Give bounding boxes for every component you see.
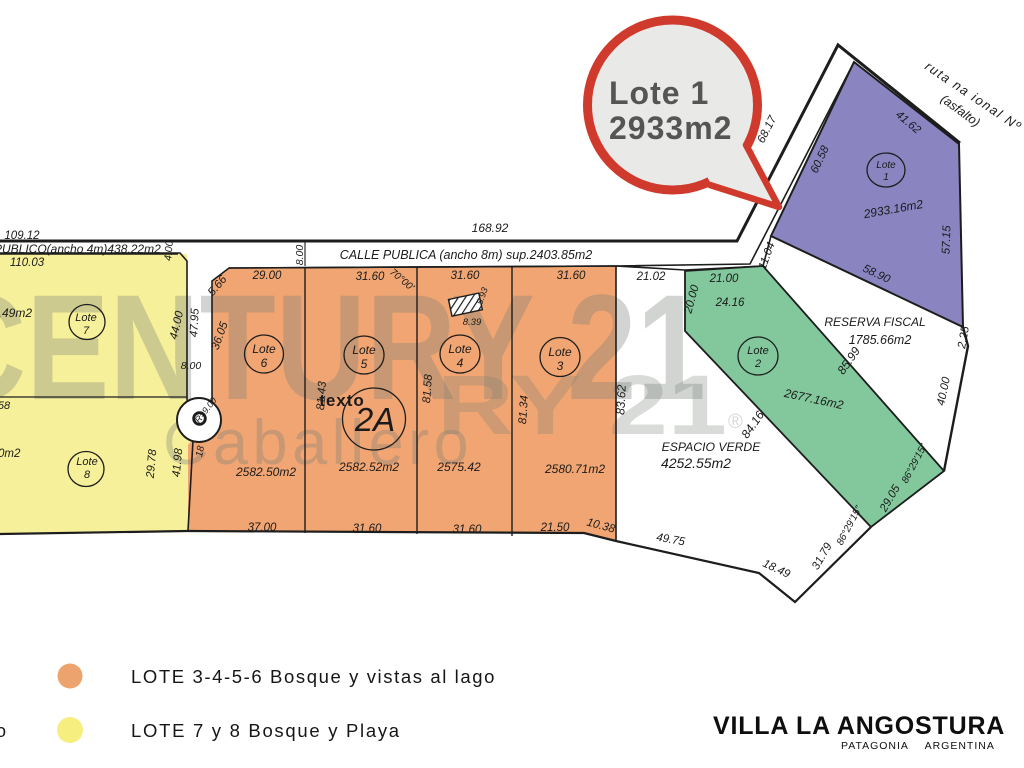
svg-text:31.60: 31.60 <box>451 270 480 282</box>
svg-text:RESERVA FISCAL: RESERVA FISCAL <box>824 315 925 329</box>
svg-text:5: 5 <box>361 357 368 371</box>
svg-text:3: 3 <box>557 359 564 373</box>
svg-text:8.39: 8.39 <box>463 317 482 328</box>
svg-text:Lote: Lote <box>76 456 97 468</box>
svg-text:2575.42: 2575.42 <box>436 460 481 474</box>
svg-text:31.60: 31.60 <box>356 271 385 283</box>
svg-text:2: 2 <box>754 358 761 370</box>
svg-text:8.00: 8.00 <box>294 245 306 266</box>
svg-text:41.98: 41.98 <box>171 447 186 477</box>
svg-text:83.62: 83.62 <box>613 384 629 415</box>
svg-text:6: 6 <box>261 356 268 370</box>
svg-text:7: 7 <box>83 325 90 337</box>
svg-text:2933m2: 2933m2 <box>609 110 732 146</box>
svg-text:RY 21: RY 21 <box>437 358 727 452</box>
svg-text:Lote: Lote <box>352 343 376 357</box>
svg-text:8: 8 <box>84 469 91 481</box>
svg-text:24.16: 24.16 <box>715 297 745 309</box>
svg-text:2582.50m2: 2582.50m2 <box>235 465 296 479</box>
svg-text:8.00: 8.00 <box>181 360 202 372</box>
svg-text:o: o <box>0 721 6 741</box>
svg-text:21.00: 21.00 <box>709 273 739 285</box>
svg-text:2580.71m2: 2580.71m2 <box>544 462 605 476</box>
svg-text:ESPACIO VERDE: ESPACIO VERDE <box>662 440 762 454</box>
svg-text:31.60: 31.60 <box>353 523 382 535</box>
svg-text:Lote 1: Lote 1 <box>609 75 709 111</box>
svg-text:2.49m2: 2.49m2 <box>0 306 32 320</box>
svg-text:2582.52m2: 2582.52m2 <box>338 460 399 474</box>
svg-text:81.58: 81.58 <box>421 373 435 403</box>
svg-text:PATAGONIA ARGENTINA: PATAGONIA ARGENTINA <box>841 740 995 752</box>
svg-text:PUBLICO(ancho 4m)438.22m2: PUBLICO(ancho 4m)438.22m2 <box>0 242 161 256</box>
svg-text:Lote: Lote <box>75 312 96 324</box>
svg-text:29.00: 29.00 <box>252 270 282 282</box>
svg-text:LOTE 7 y 8 Bosque y Playa: LOTE 7 y 8 Bosque y Playa <box>131 720 401 741</box>
svg-text:58: 58 <box>0 400 11 412</box>
svg-text:CALLE PUBLICA (ancho 8m) sup.2: CALLE PUBLICA (ancho 8m) sup.2403.85m2 <box>340 248 592 262</box>
svg-text:4: 4 <box>457 356 464 370</box>
svg-text:LOTE 3-4-5-6 Bosque y vistas: LOTE 3-4-5-6 Bosque y vistas al lago <box>131 666 496 687</box>
svg-text:4252.55m2: 4252.55m2 <box>661 455 731 471</box>
svg-text:21.02: 21.02 <box>636 271 666 283</box>
svg-text:57.15: 57.15 <box>941 225 954 255</box>
svg-text:47.95: 47.95 <box>188 308 202 338</box>
svg-text:0m2: 0m2 <box>0 448 21 460</box>
svg-text:Lote: Lote <box>448 342 472 356</box>
svg-text:1785.66m2: 1785.66m2 <box>849 333 912 347</box>
svg-text:110.03: 110.03 <box>10 257 45 269</box>
svg-text:109.12: 109.12 <box>4 230 40 242</box>
svg-text:Lote: Lote <box>548 345 572 359</box>
svg-text:1: 1 <box>883 172 889 183</box>
svg-text:VILLA LA ANGOSTURA: VILLA LA ANGOSTURA <box>713 712 1005 740</box>
svg-text:168.92: 168.92 <box>472 221 509 235</box>
svg-text:21.50: 21.50 <box>540 522 570 534</box>
svg-text:Lote: Lote <box>876 160 896 171</box>
svg-text:Lote: Lote <box>252 342 276 356</box>
svg-text:31.60: 31.60 <box>557 270 586 282</box>
svg-text:37.00: 37.00 <box>248 522 277 534</box>
svg-text:4.00: 4.00 <box>162 240 176 262</box>
svg-text:31.60: 31.60 <box>453 524 482 536</box>
svg-text:2A: 2A <box>354 401 395 438</box>
svg-text:81.34: 81.34 <box>517 395 531 425</box>
svg-text:Lote: Lote <box>747 345 768 357</box>
